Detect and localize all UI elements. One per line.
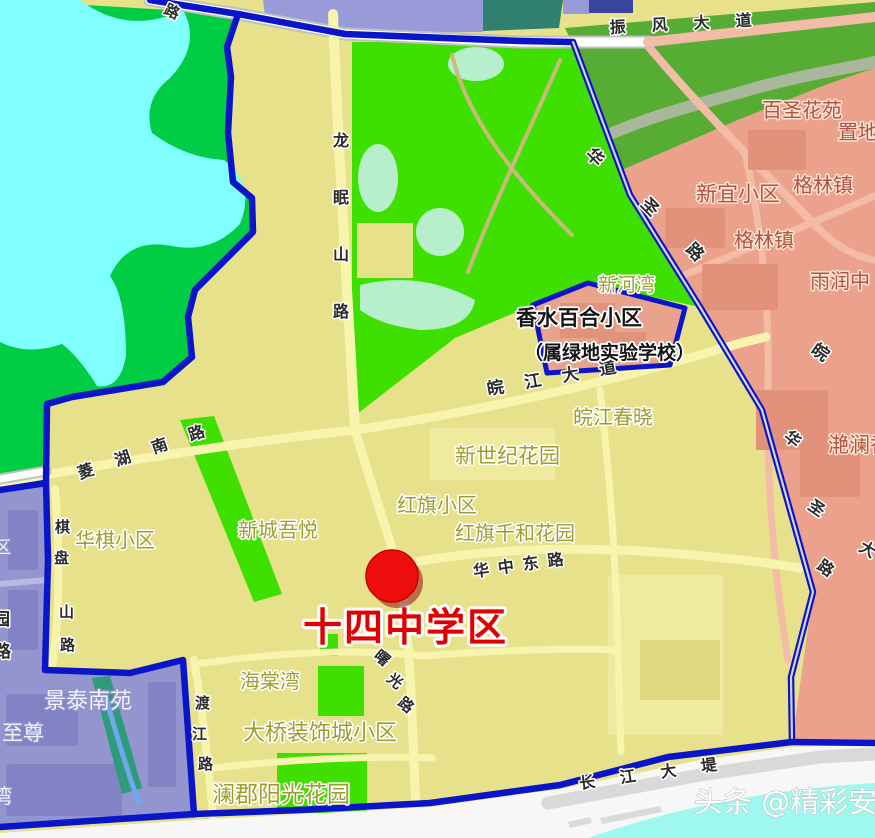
- road-qipanshan-4: 路: [60, 636, 76, 654]
- block-dark-1: [640, 640, 720, 700]
- area-gelin-town-1: 格林镇: [793, 173, 853, 197]
- purple-building-1: [8, 510, 38, 570]
- road-qipanshan-3: 山: [59, 603, 74, 621]
- purple-building-2: [8, 590, 38, 650]
- area-jingtai-nanyuan: 景泰南苑: [44, 689, 132, 714]
- purple-road: [0, 580, 47, 584]
- area-lu-partial: 路: [0, 641, 12, 662]
- area-hongqi-qianhe: 红旗千和花园: [455, 521, 575, 545]
- area-baisheng-huayuan: 百圣花苑: [762, 98, 842, 122]
- teal-block: [483, 0, 563, 31]
- road-dujiang-1: 渡: [195, 694, 211, 712]
- park-khaki-2: [286, 190, 334, 245]
- lavender-block-2: [563, 0, 589, 14]
- pale-green-2: [416, 208, 464, 256]
- area-lvdi-school-note: （属绿地实验学校）: [524, 341, 695, 364]
- area-xinshiji-garden: 新世纪花园: [455, 444, 560, 468]
- district-title: 十四中学区: [303, 606, 508, 651]
- purple-building-5: [148, 682, 176, 787]
- pale-green-1: [358, 144, 398, 212]
- watermark: 头条 @精彩安庆: [694, 785, 875, 819]
- area-wan-partial: 湾: [0, 784, 12, 808]
- area-daqiao-zhuangshi: 大桥装饰城小区: [243, 721, 397, 746]
- area-zhidi: 置地: [838, 120, 875, 144]
- area-xiangshui-baihe: 香水百合小区: [516, 306, 642, 330]
- navy-water-patch: [589, 0, 633, 13]
- road-qipanshan-2: 盘: [54, 549, 69, 567]
- area-wanjiang-chunxiao: 皖江春晓: [573, 405, 653, 429]
- park-khaki-3: [357, 223, 413, 278]
- road-dujiang-2: 江: [192, 725, 207, 743]
- area-haitangwan: 海棠湾: [240, 669, 300, 693]
- green-patch-1: [318, 666, 364, 716]
- area-yanlan-partial: 滟澜香: [828, 433, 875, 457]
- area-hongqi-community: 红旗小区: [397, 493, 477, 517]
- area-xincheng-wuyue: 新城吾悦: [238, 518, 318, 542]
- area-xinhewan: 新河湾: [598, 274, 655, 296]
- area-xinyi-community: 新宜小区: [696, 182, 780, 206]
- purple-building-4: [6, 764, 122, 816]
- map-canvas: 振风大道路龙眠山路华圣路皖江大道菱湖南路棋盘山路皖华圣路大华中东路曙光路渡江路长…: [0, 0, 875, 838]
- area-yuan-partial: 园: [0, 610, 10, 630]
- road-dujiang-3: 路: [198, 755, 214, 773]
- area-gelin-town-2: 格林镇: [734, 228, 794, 252]
- area-zhizun-partial: 至尊: [2, 721, 44, 745]
- school-district-map: 振风大道路龙眠山路华圣路皖江大道菱湖南路棋盘山路皖华圣路大华中东路曙光路渡江路长…: [0, 0, 875, 838]
- road-qipanshan-1: 棋: [55, 518, 70, 536]
- area-huaqi-community: 华棋小区: [75, 528, 155, 552]
- area-lanjun-yangguang: 澜郡阳光花园: [212, 782, 350, 808]
- area-yurun-partial: 雨润中: [810, 269, 870, 293]
- area-qu-partial: 区: [0, 538, 11, 558]
- school-marker[interactable]: [366, 550, 418, 602]
